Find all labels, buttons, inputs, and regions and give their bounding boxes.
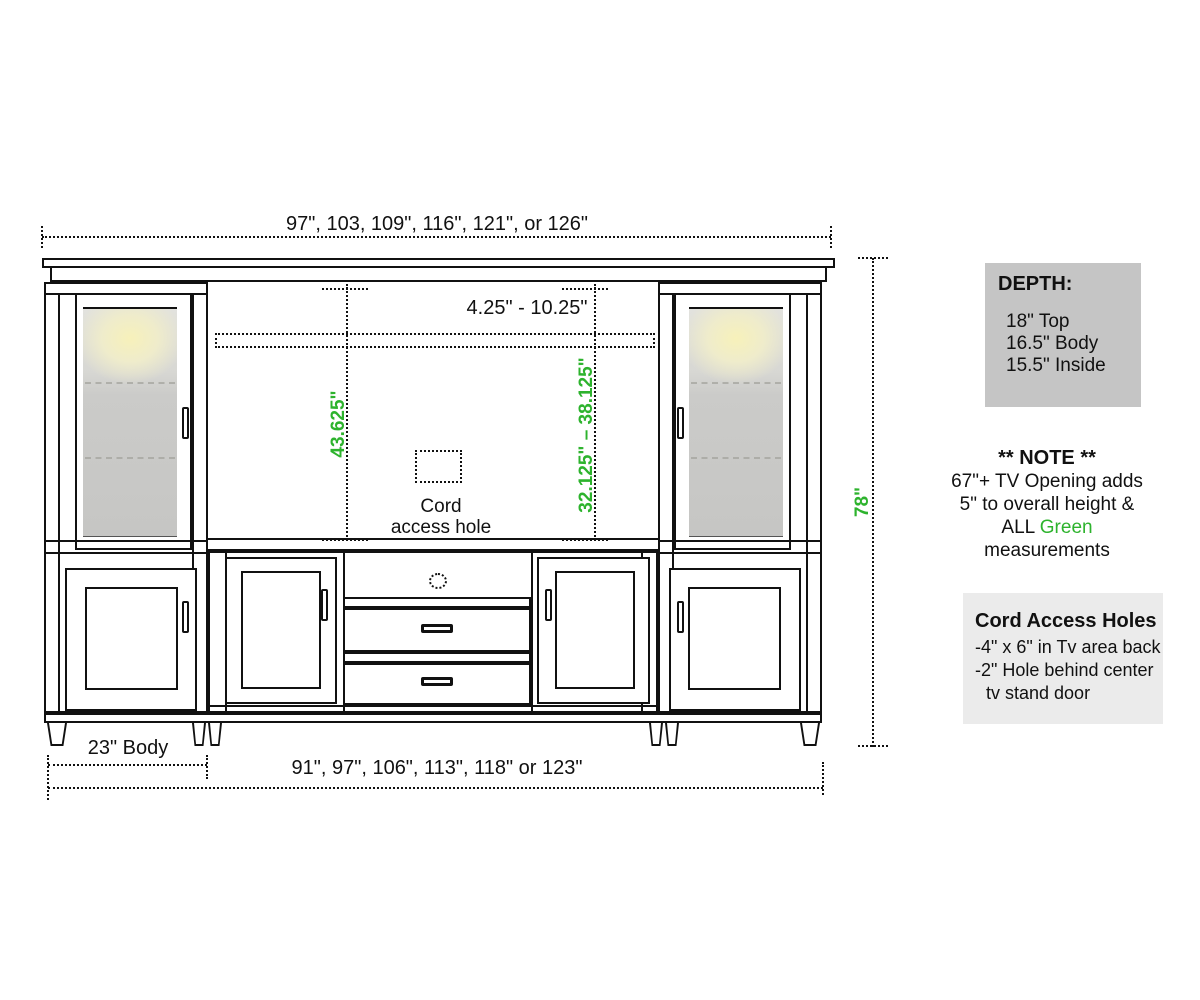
- right-tower: [658, 282, 822, 713]
- shelf-board: [343, 597, 531, 608]
- stand-left-door: [225, 557, 337, 704]
- right-glass-door: [674, 293, 791, 550]
- dim-tick: [47, 755, 49, 800]
- dim-tick: [858, 257, 888, 259]
- note-green-word: Green: [1040, 517, 1093, 538]
- dim-tick: [858, 745, 888, 747]
- glass-panel: [83, 307, 177, 537]
- note-line1: 67"+ TV Opening adds: [947, 470, 1147, 493]
- note-line4: measurements: [947, 539, 1147, 562]
- foot: [47, 723, 67, 746]
- foot: [208, 723, 222, 746]
- left-glass-door: [75, 293, 192, 550]
- drawer-handle: [421, 677, 453, 686]
- dim-tick: [41, 226, 43, 248]
- depth-line-body: 16.5" Body: [1006, 333, 1141, 355]
- depth-lines: 18" Top 16.5" Body 15.5" Inside: [985, 296, 1141, 377]
- glass-panel: [689, 307, 783, 537]
- stand-right-door: [537, 557, 650, 704]
- glass-shelf-line: [691, 382, 781, 384]
- tv-gap-label: 4.25" - 10.25": [467, 297, 588, 320]
- door-panel: [555, 571, 635, 689]
- body-width-label: 23" Body: [88, 737, 169, 760]
- drawer-divider-board: [343, 652, 531, 663]
- cord-hole-label-line1: Cord: [391, 496, 491, 517]
- note-line3-prefix: ALL: [1001, 517, 1039, 538]
- door-handle: [182, 601, 189, 633]
- bottom-width-dimension-line: [48, 787, 823, 789]
- right-lower-door: [669, 568, 801, 711]
- dim-tick: [562, 539, 608, 541]
- entertainment-center-diagram: 97", 103, 109", 116", 121", or 126" 4.25…: [0, 0, 1200, 1000]
- cord-access-hole-label: Cord access hole: [391, 496, 491, 538]
- dim-tick: [322, 288, 368, 290]
- adjustable-shelf-zone: [215, 333, 655, 348]
- base-rail: [44, 713, 822, 723]
- stand-bottom-rail: [210, 705, 656, 707]
- cord-access-title: Cord Access Holes: [975, 610, 1163, 633]
- door-handle: [677, 407, 684, 439]
- dim-tick: [322, 539, 368, 541]
- door-handle: [545, 589, 552, 621]
- depth-line-top: 18" Top: [1006, 311, 1141, 333]
- tower-mid-rail: [46, 552, 206, 554]
- dim-tick: [206, 755, 208, 779]
- bottom-width-label: 91", 97", 106", 113", 118" or 123": [292, 757, 583, 780]
- door-handle: [321, 589, 328, 621]
- cord-access-hole-marker: [415, 450, 462, 483]
- crown-molding-lower: [50, 266, 827, 282]
- door-panel: [85, 587, 178, 690]
- top-width-dimension-line: [42, 236, 831, 238]
- glass-shelf-line: [691, 457, 781, 459]
- drawer-handle: [421, 624, 453, 633]
- left-tower: [44, 282, 208, 713]
- door-panel: [688, 587, 781, 690]
- tower-mid-rail: [660, 552, 820, 554]
- body-width-dimension-line: [48, 764, 207, 766]
- door-handle: [182, 407, 189, 439]
- foot: [192, 723, 206, 746]
- dim-tick: [830, 226, 832, 248]
- tower-inner-stile: [58, 293, 60, 711]
- cord-access-line3: tv stand door: [975, 682, 1163, 705]
- tv-opening-height-label: 43.625": [328, 390, 350, 457]
- cord-hole-label-line2: access hole: [391, 517, 491, 538]
- cord-access-info-box: Cord Access Holes -4" x 6" in Tv area ba…: [963, 593, 1163, 724]
- note-title: ** NOTE **: [947, 447, 1147, 470]
- tower-mid-rail: [660, 540, 820, 542]
- note-text: ** NOTE ** 67"+ TV Opening adds 5" to ov…: [947, 447, 1147, 562]
- dim-tick: [822, 762, 824, 795]
- note-line3: ALL Green: [947, 516, 1147, 539]
- tower-inner-stile: [806, 293, 808, 711]
- cord-access-line1: -4" x 6" in Tv area back: [975, 636, 1163, 659]
- dim-tick: [562, 288, 608, 290]
- left-lower-door: [65, 568, 197, 711]
- overall-height-label: 78": [852, 487, 874, 517]
- cord-access-line2: -2" Hole behind center: [975, 659, 1163, 682]
- stand-mid-right-stile: [531, 553, 533, 711]
- drawer-bottom: [343, 663, 531, 705]
- tv-height-range-label: 32.125" – 38.125": [576, 357, 598, 512]
- glass-shelf-line: [85, 457, 175, 459]
- drawer-top: [343, 608, 531, 652]
- depth-info-box: DEPTH: 18" Top 16.5" Body 15.5" Inside: [985, 263, 1141, 407]
- note-line2: 5" to overall height &: [947, 493, 1147, 516]
- tower-mid-rail: [46, 540, 206, 542]
- foot: [800, 723, 820, 746]
- foot: [649, 723, 663, 746]
- depth-title: DEPTH:: [985, 263, 1141, 296]
- door-handle: [677, 601, 684, 633]
- foot: [665, 723, 679, 746]
- depth-line-inside: 15.5" Inside: [1006, 355, 1141, 377]
- shelf-cord-hole-marker: [429, 573, 447, 589]
- glass-shelf-line: [85, 382, 175, 384]
- door-panel: [241, 571, 321, 689]
- top-width-label: 97", 103, 109", 116", 121", or 126": [286, 213, 588, 236]
- tv-stand: [208, 551, 658, 713]
